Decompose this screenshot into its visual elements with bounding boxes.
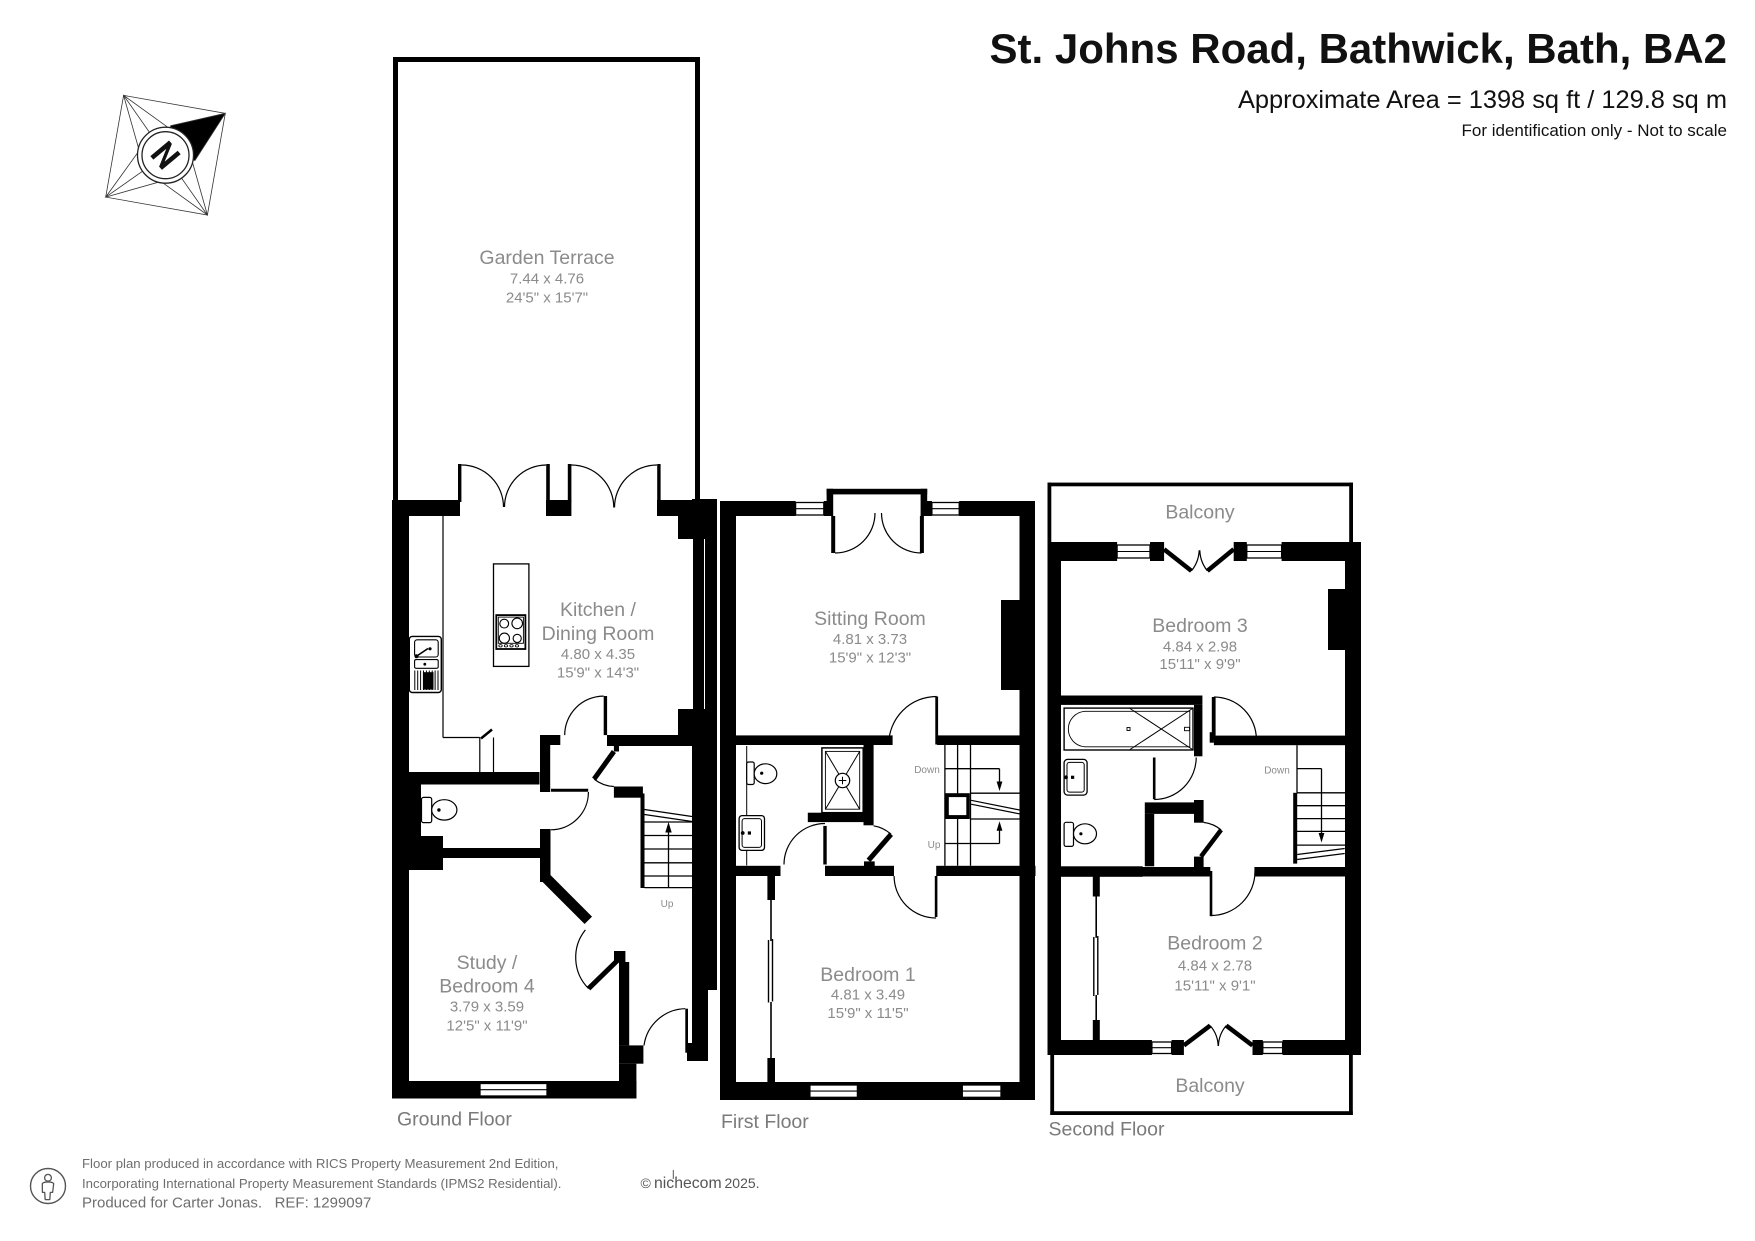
svg-text:Approximate Area = 1398 sq ft: Approximate Area = 1398 sq ft / 129.8 sq… (1238, 86, 1727, 114)
svg-text:Bedroom 4: Bedroom 4 (439, 975, 535, 997)
svg-text:2025.: 2025. (725, 1175, 760, 1191)
svg-text:4.81 x 3.73: 4.81 x 3.73 (833, 631, 907, 648)
svg-text:Ground Floor: Ground Floor (397, 1109, 512, 1131)
svg-text:7.44 x 4.76: 7.44 x 4.76 (510, 271, 584, 288)
svg-text:Balcony: Balcony (1175, 1075, 1245, 1097)
svg-text:©: © (641, 1175, 652, 1191)
svg-text:Bedroom 1: Bedroom 1 (820, 964, 915, 986)
svg-text:Up: Up (928, 840, 941, 851)
svg-text:4.81 x 3.49: 4.81 x 3.49 (831, 987, 905, 1004)
svg-text:3.79 x 3.59: 3.79 x 3.59 (450, 999, 524, 1016)
svg-text:Bedroom 3: Bedroom 3 (1152, 615, 1247, 637)
svg-text:Balcony: Balcony (1165, 502, 1235, 524)
svg-text:Produced for Carter Jonas. R: Produced for Carter Jonas. REF: 1299097 (82, 1195, 371, 1212)
svg-text:Dining Room: Dining Room (542, 623, 655, 645)
svg-text:12'5" x 11'9": 12'5" x 11'9" (446, 1018, 527, 1035)
svg-text:Second Floor: Second Floor (1049, 1119, 1165, 1141)
svg-text:4.84 x 2.78: 4.84 x 2.78 (1178, 957, 1252, 974)
svg-text:15'11" x 9'1": 15'11" x 9'1" (1174, 977, 1255, 994)
svg-text:Kitchen /: Kitchen / (560, 599, 636, 621)
svg-text:Study /: Study / (457, 952, 518, 974)
svg-text:Garden Terrace: Garden Terrace (479, 247, 614, 269)
svg-text:St. Johns Road, Bathwick, Bath: St. Johns Road, Bathwick, Bath, BA2 (990, 25, 1727, 72)
svg-text:4.84 x 2.98: 4.84 x 2.98 (1163, 639, 1237, 656)
svg-text:Up: Up (661, 899, 674, 910)
svg-text:Incorporating International Pr: Incorporating International Property Mea… (82, 1176, 561, 1191)
svg-text:Floor plan produced in accorda: Floor plan produced in accordance with R… (82, 1156, 558, 1171)
svg-text:15'9" x 14'3": 15'9" x 14'3" (557, 664, 639, 681)
svg-text:First Floor: First Floor (721, 1111, 809, 1133)
svg-text:Down: Down (1264, 765, 1290, 776)
svg-text:nichecom: nichecom (654, 1175, 722, 1192)
svg-text:4.80 x 4.35: 4.80 x 4.35 (561, 646, 635, 663)
svg-text:15'11" x 9'9": 15'11" x 9'9" (1159, 656, 1240, 673)
svg-text:15'9" x 11'5": 15'9" x 11'5" (827, 1005, 908, 1022)
svg-text:24'5" x 15'7": 24'5" x 15'7" (506, 290, 588, 307)
svg-text:For identification only - Not: For identification only - Not to scale (1461, 121, 1727, 140)
svg-text:Down: Down (914, 765, 940, 776)
svg-text:Bedroom 2: Bedroom 2 (1167, 933, 1262, 955)
svg-text:15'9" x 12'3": 15'9" x 12'3" (829, 649, 911, 666)
svg-text:Sitting Room: Sitting Room (814, 608, 926, 630)
